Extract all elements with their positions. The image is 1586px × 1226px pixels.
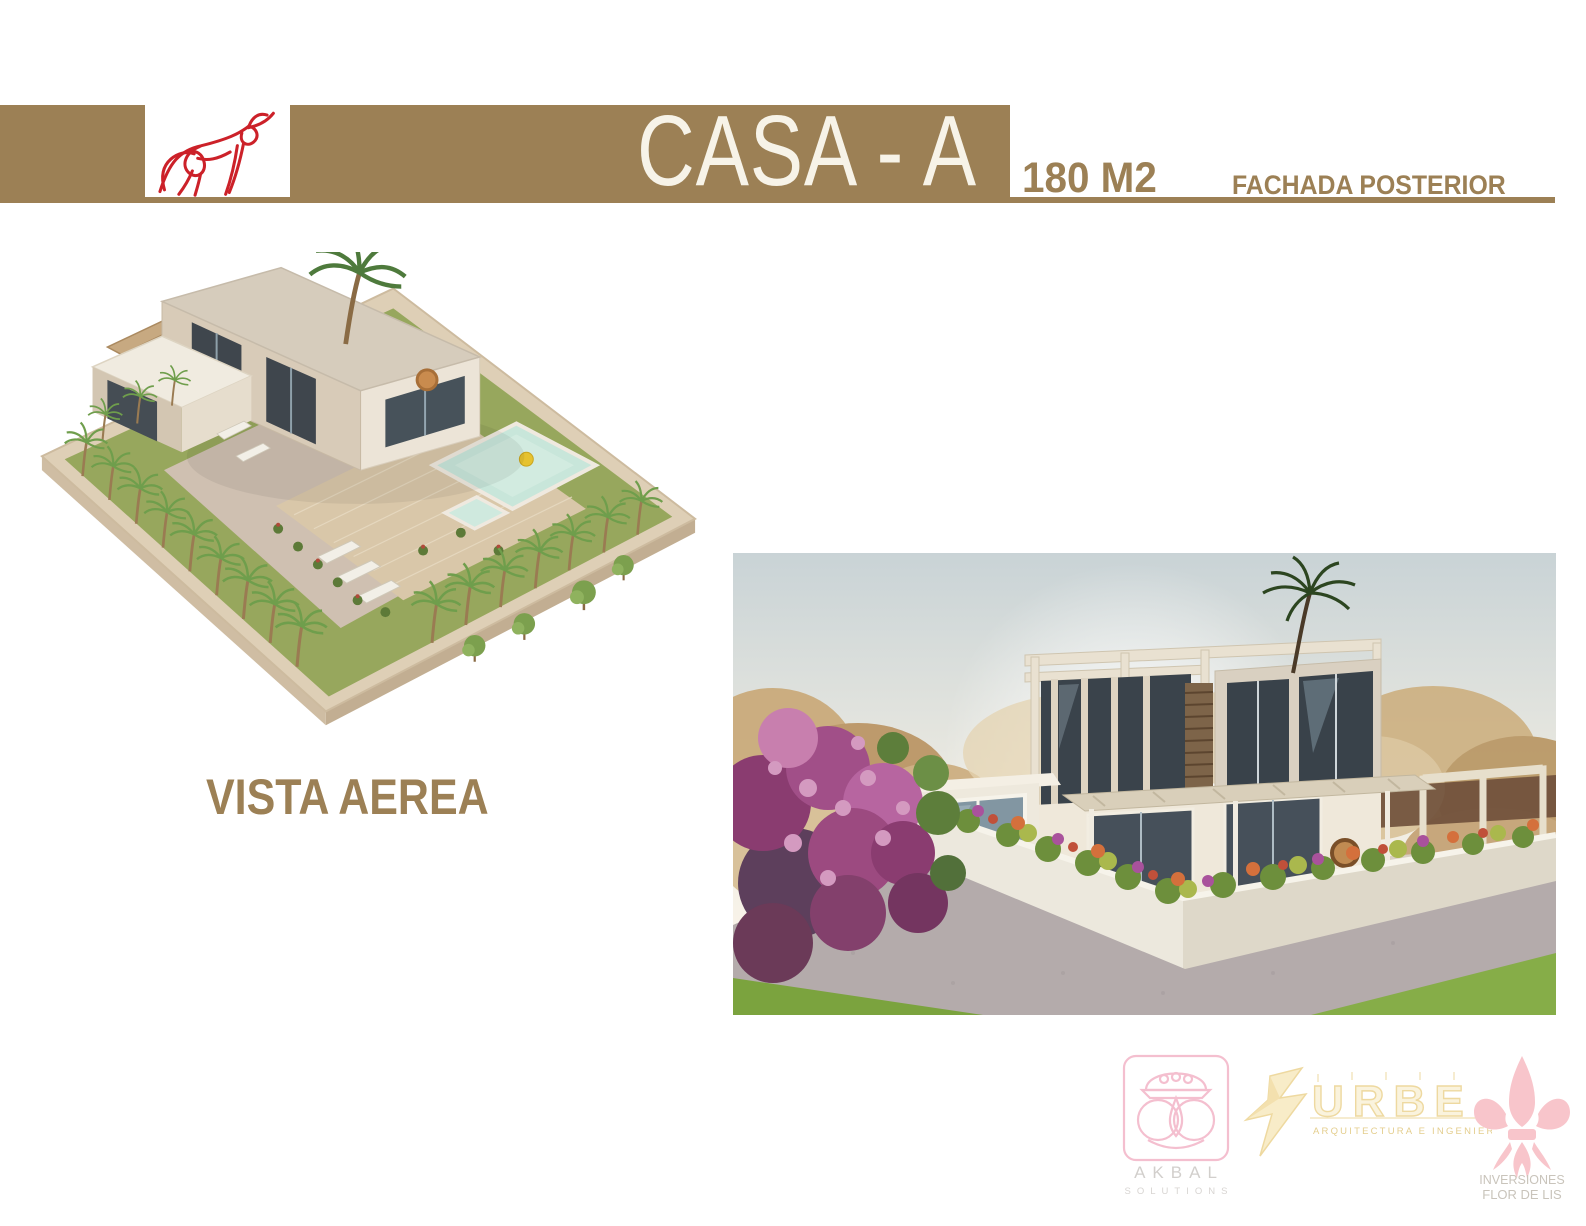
aerial-view-image (28, 252, 708, 730)
inversiones-label: INVERSIONES (1479, 1173, 1564, 1187)
brand-logo-box (145, 105, 290, 197)
aerial-caption: VISTA AEREA (206, 768, 489, 826)
flor-de-lis-logo: INVERSIONES FLOR DE LIS (1466, 1052, 1578, 1204)
facade-view-label: FACHADA POSTERIOR (1232, 170, 1506, 201)
rear-facade-image (733, 553, 1556, 1015)
area-label: 180 M2 (1022, 154, 1157, 203)
akbal-sublabel: SOLUTIONS (1125, 1186, 1234, 1197)
page-title: CASA - A (637, 100, 973, 200)
urbe-label: URBE (1312, 1077, 1473, 1126)
akbal-logo: AKBAL SOLUTIONS (1118, 1052, 1240, 1202)
akbal-logo-icon (1124, 1056, 1228, 1160)
fleur-de-lis-icon (1474, 1056, 1570, 1178)
bull-logo-icon (152, 107, 284, 197)
akbal-label: AKBAL (1134, 1163, 1224, 1182)
flor-de-lis-label: FLOR DE LIS (1482, 1187, 1562, 1202)
urbe-logo: URBE ARQUITECTURA E INGENIERIA SAS (1240, 1066, 1492, 1160)
